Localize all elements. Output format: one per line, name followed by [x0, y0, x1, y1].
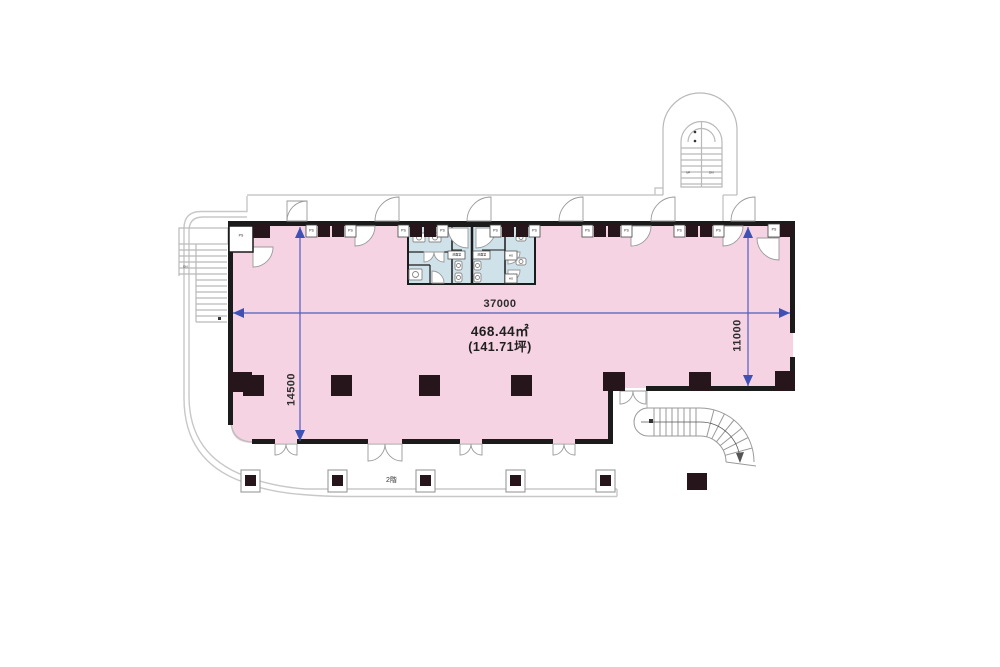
dimension-width-label: 37000	[430, 299, 570, 310]
dimension-depth-right-label: 11000	[733, 306, 744, 366]
ps-label: PS	[400, 229, 406, 232]
hg-label: HG	[508, 278, 514, 281]
ps-label: PS	[234, 234, 248, 237]
stair-dn-label: DN	[183, 266, 187, 269]
dimension-depth-left-label: 14500	[287, 360, 298, 420]
washroom-label: 洗面室	[452, 254, 461, 257]
washroom-label: 洗面室	[477, 254, 486, 257]
hg-label: HG	[508, 255, 514, 258]
ps-label: PS	[492, 229, 498, 232]
area-m2-label: 468.44㎡	[430, 325, 570, 339]
area-tsubo-label: (141.71坪)	[430, 341, 570, 354]
stair-up-label: UP	[686, 172, 690, 175]
ps-label: PS	[531, 229, 537, 232]
ps-label: PS	[771, 228, 778, 231]
ps-label: PS	[439, 229, 445, 232]
ps-label: PS	[347, 229, 353, 232]
ps-label: PS	[623, 229, 629, 232]
stair-top-right	[663, 93, 737, 195]
stair-dn-label: DN	[709, 172, 713, 175]
floor-plan: 468.44㎡ (141.71坪) 37000 14500 11000 2階 P…	[0, 0, 1000, 667]
floor-label: 2階	[386, 477, 397, 484]
ps-label: PS	[308, 229, 314, 232]
stair-left	[179, 228, 228, 322]
stair-curved	[634, 408, 756, 466]
ps-label: PS	[676, 229, 682, 232]
ps-label: PS	[715, 229, 721, 232]
ps-label: PS	[584, 229, 590, 232]
